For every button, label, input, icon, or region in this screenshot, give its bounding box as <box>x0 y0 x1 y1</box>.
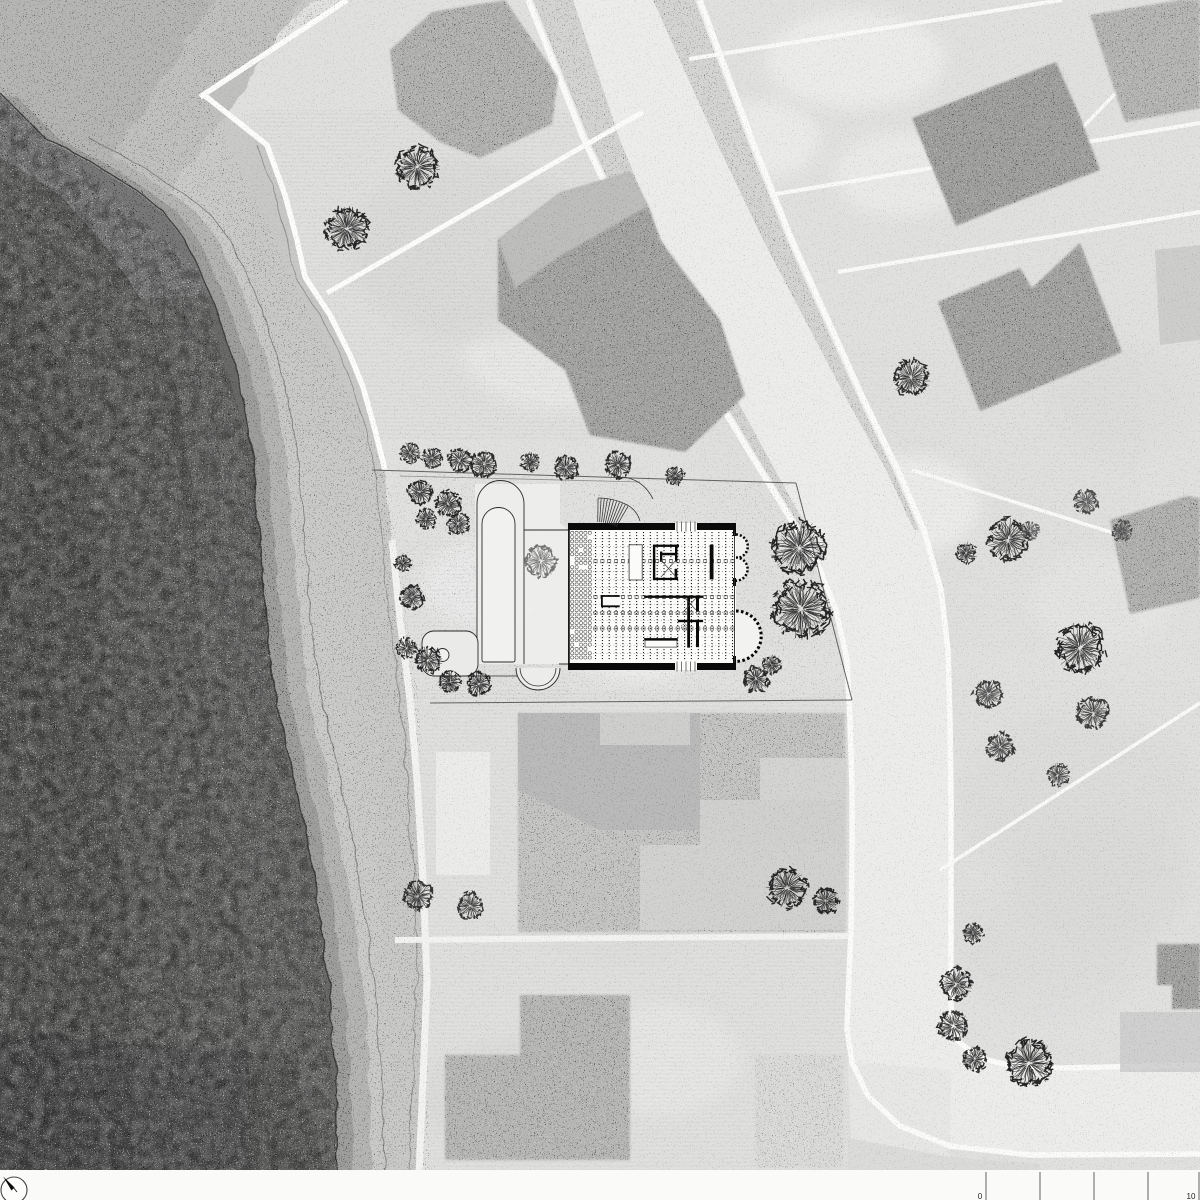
svg-text:10: 10 <box>1187 1192 1196 1200</box>
svg-text:0: 0 <box>978 1192 983 1200</box>
